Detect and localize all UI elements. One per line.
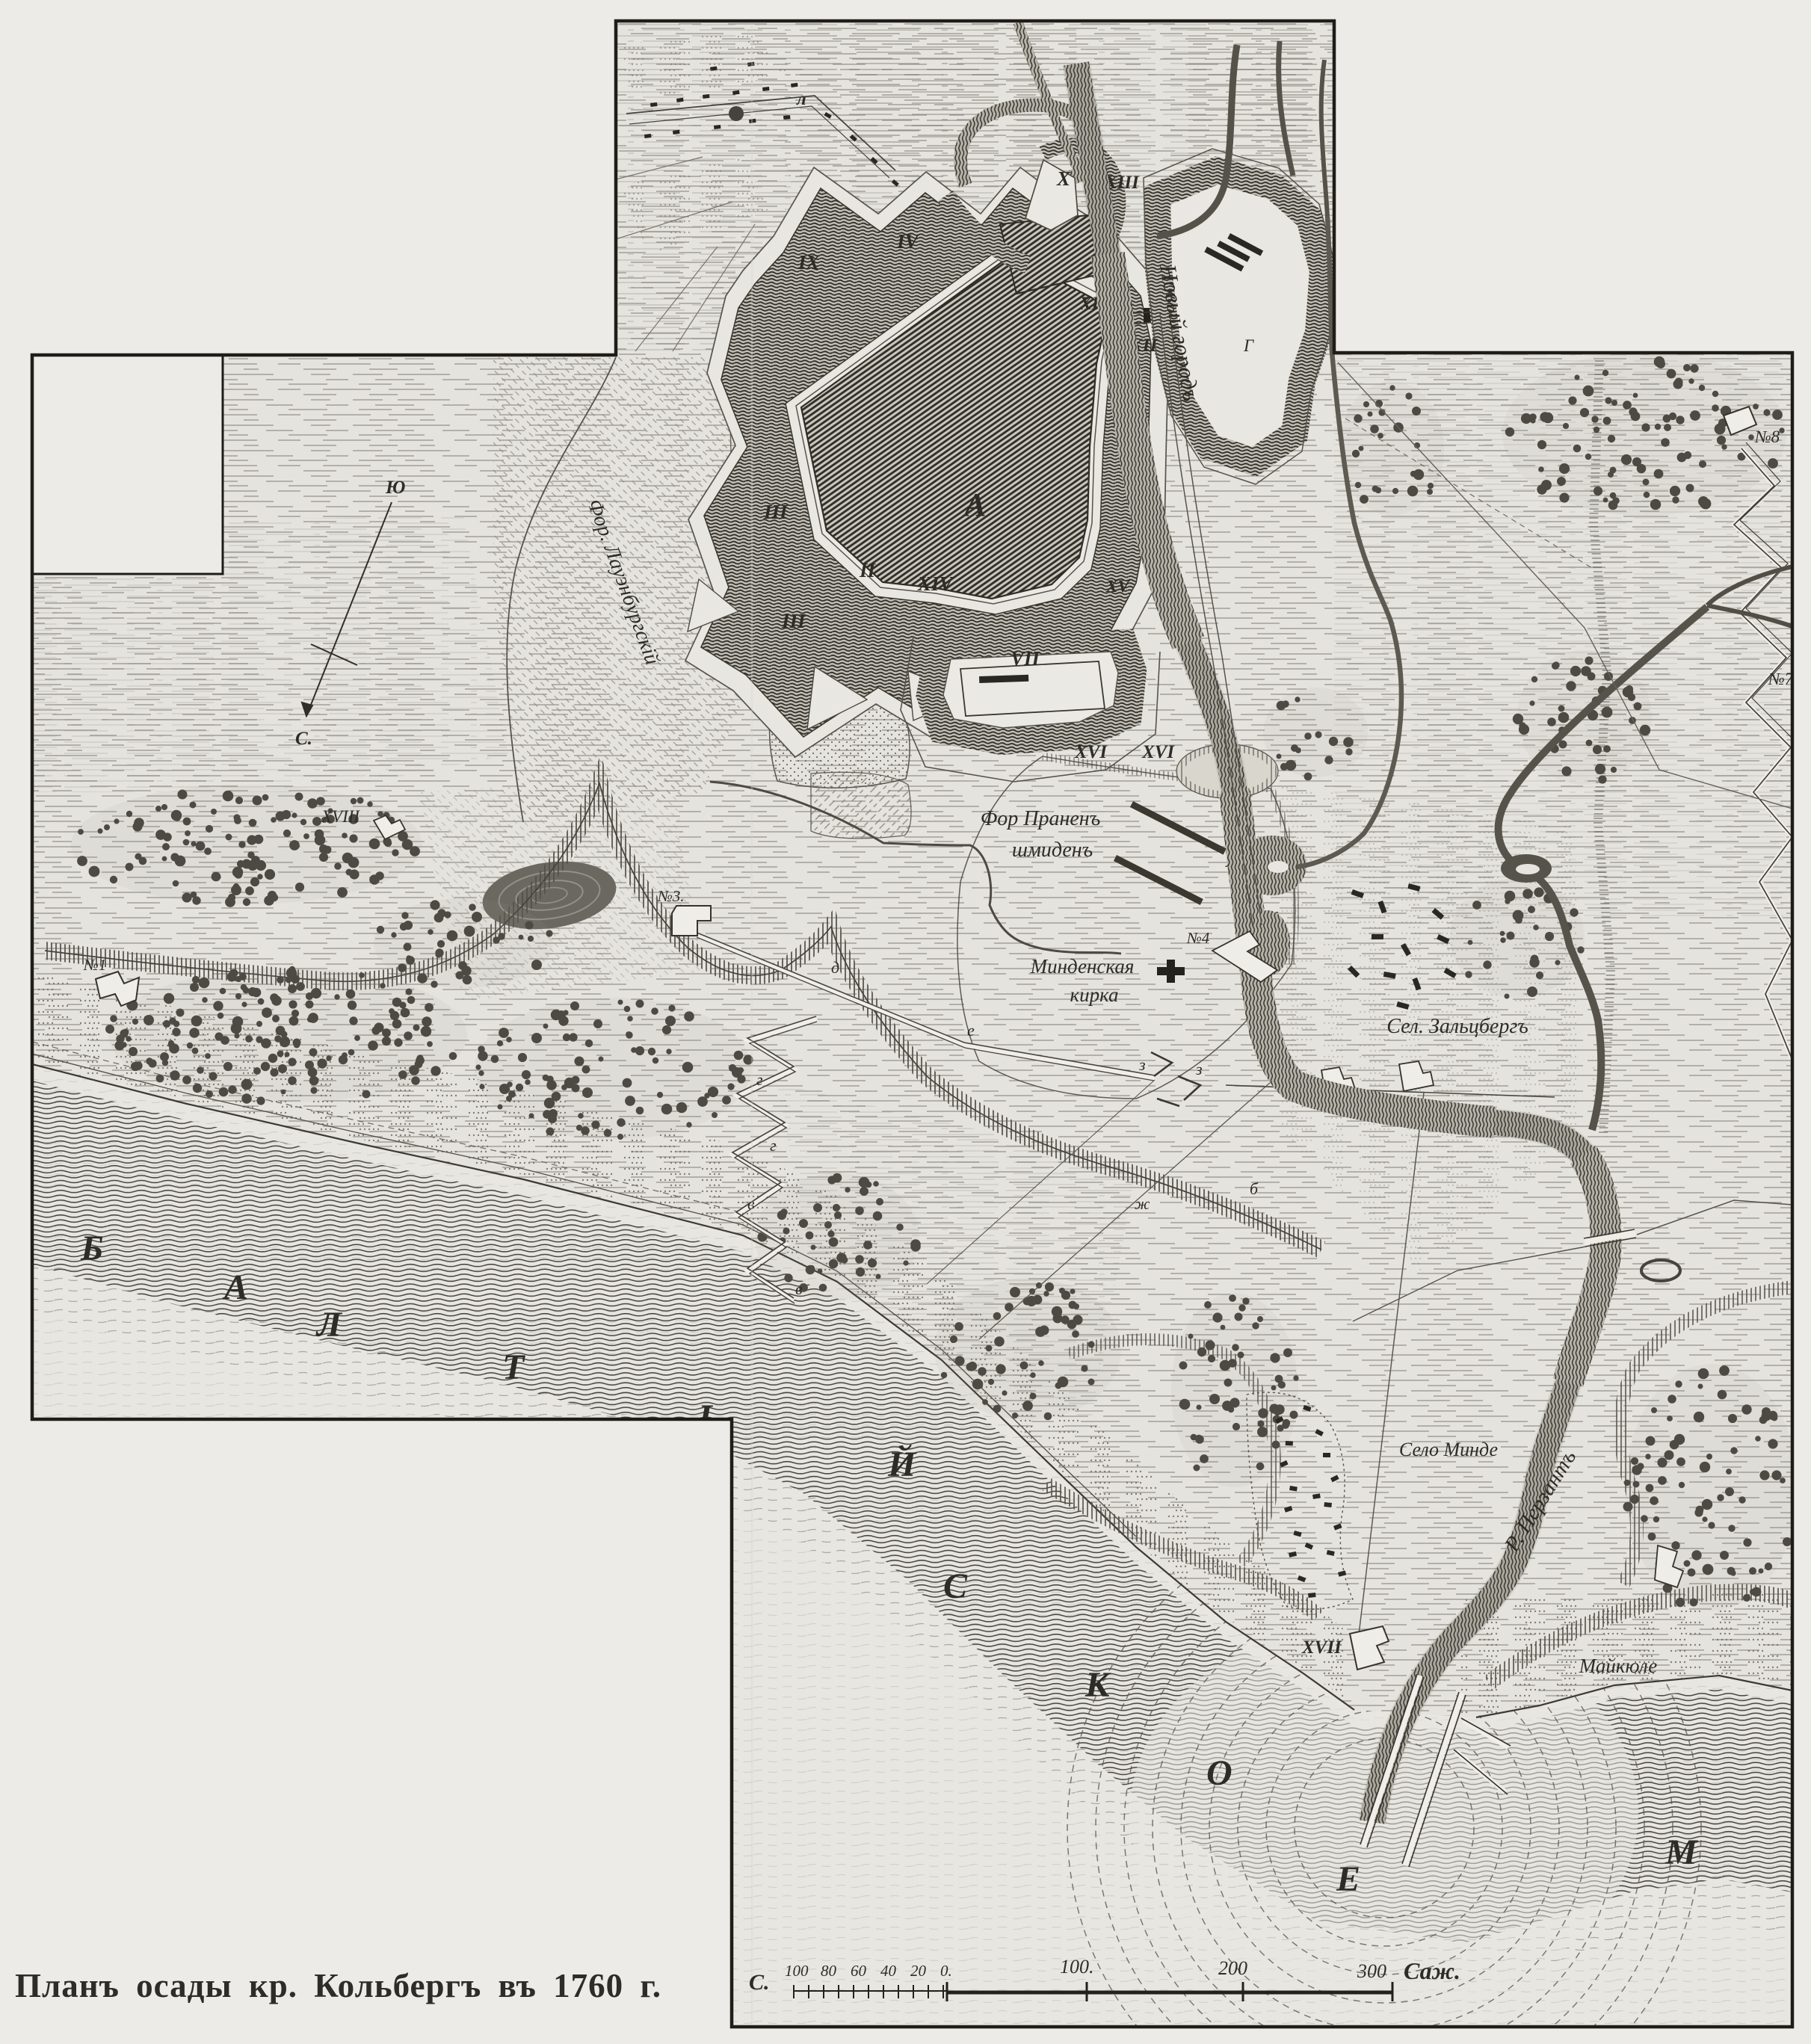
svg-text:№4: №4 (1186, 929, 1210, 947)
svg-text:IV: IV (896, 230, 920, 253)
svg-text:е: е (967, 1021, 975, 1040)
svg-text:Майкюле: Майкюле (1579, 1655, 1658, 1677)
svg-text:Й: Й (887, 1443, 917, 1484)
svg-text:Т: Т (502, 1347, 525, 1387)
svg-text:100.: 100. (1060, 1956, 1094, 1977)
svg-text:20: 20 (910, 1962, 927, 1980)
svg-text:Минденская: Минденская (1030, 955, 1135, 978)
svg-text:г: г (770, 1136, 777, 1155)
svg-text:б: б (1250, 1179, 1259, 1198)
svg-text:Б: Б (80, 1229, 104, 1268)
svg-text:шмиденъ: шмиденъ (1012, 839, 1093, 862)
svg-text:Ю: Ю (385, 478, 405, 498)
svg-text:XV: XV (1105, 577, 1130, 596)
svg-text:О: О (1206, 1753, 1232, 1793)
svg-text:XVIII: XVIII (321, 807, 360, 826)
svg-text:II: II (859, 559, 877, 581)
svg-text:80: 80 (821, 1962, 837, 1980)
svg-text:М: М (1665, 1833, 1699, 1872)
svg-text:С.: С. (295, 729, 312, 749)
svg-text:№3.: №3. (657, 887, 685, 905)
svg-text:XIV: XIV (917, 572, 954, 595)
svg-text:XVI: XVI (1074, 742, 1108, 762)
svg-text:IX: IX (797, 251, 821, 274)
svg-text:С.: С. (749, 1970, 770, 1995)
svg-text:XVII: XVII (1301, 1637, 1342, 1658)
svg-text:200: 200 (1218, 1957, 1247, 1979)
svg-text:III: III (781, 610, 806, 632)
svg-text:Л: Л (315, 1305, 343, 1344)
svg-text:X: X (1056, 167, 1071, 190)
svg-text:Е: Е (1336, 1859, 1360, 1899)
svg-text:Г: Г (1243, 336, 1254, 355)
svg-text:№7: №7 (1768, 670, 1795, 688)
svg-text:д: д (831, 958, 839, 977)
svg-text:Сел. Зальцбергъ: Сел. Зальцбергъ (1386, 1015, 1528, 1038)
svg-text:в: в (795, 1279, 803, 1298)
svg-text:А: А (222, 1268, 248, 1307)
svg-text:Планъ осады кр. Кольбергъ въ 1: Планъ осады кр. Кольбергъ въ 1760 г. (15, 1967, 661, 2004)
svg-text:300: 300 (1357, 1960, 1386, 1982)
svg-text:С: С (943, 1566, 968, 1606)
svg-text:Фор Праненъ: Фор Праненъ (981, 807, 1100, 830)
svg-text:л: л (796, 89, 806, 109)
svg-text:з: з (1138, 1055, 1146, 1074)
svg-text:VII: VII (1011, 647, 1041, 670)
svg-text:A: A (962, 487, 986, 523)
svg-text:К: К (1085, 1665, 1111, 1705)
svg-text:Село Минде: Село Минде (1399, 1439, 1498, 1460)
svg-text:Саж.: Саж. (1404, 1957, 1460, 1984)
svg-text:№8: №8 (1754, 427, 1780, 446)
svg-text:40: 40 (880, 1962, 897, 1980)
svg-text:№1: №1 (83, 956, 106, 974)
svg-text:ж: ж (1135, 1194, 1150, 1213)
svg-text:з: з (1195, 1060, 1203, 1078)
svg-text:100: 100 (785, 1962, 809, 1980)
svg-text:60: 60 (851, 1962, 867, 1980)
svg-text:XVI: XVI (1141, 742, 1175, 762)
svg-text:кирка: кирка (1070, 984, 1118, 1006)
svg-text:III: III (763, 501, 789, 523)
svg-text:0.: 0. (940, 1962, 952, 1980)
svg-text:г: г (756, 1070, 763, 1089)
